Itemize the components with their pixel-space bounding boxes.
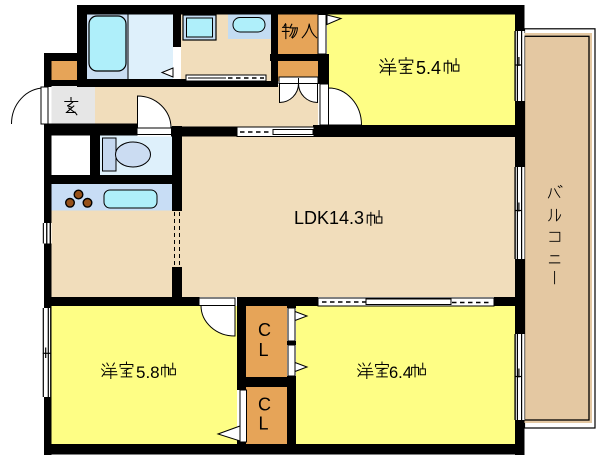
svg-text:C: C [258, 395, 271, 415]
svg-text:6.4: 6.4 [389, 364, 412, 382]
svg-text:5.4: 5.4 [416, 58, 441, 78]
svg-text:L: L [259, 414, 269, 434]
svg-text:5.8: 5.8 [136, 363, 160, 382]
svg-text:LDK14.3: LDK14.3 [294, 208, 364, 228]
svg-text:C: C [258, 320, 271, 340]
svg-text:L: L [259, 340, 269, 360]
